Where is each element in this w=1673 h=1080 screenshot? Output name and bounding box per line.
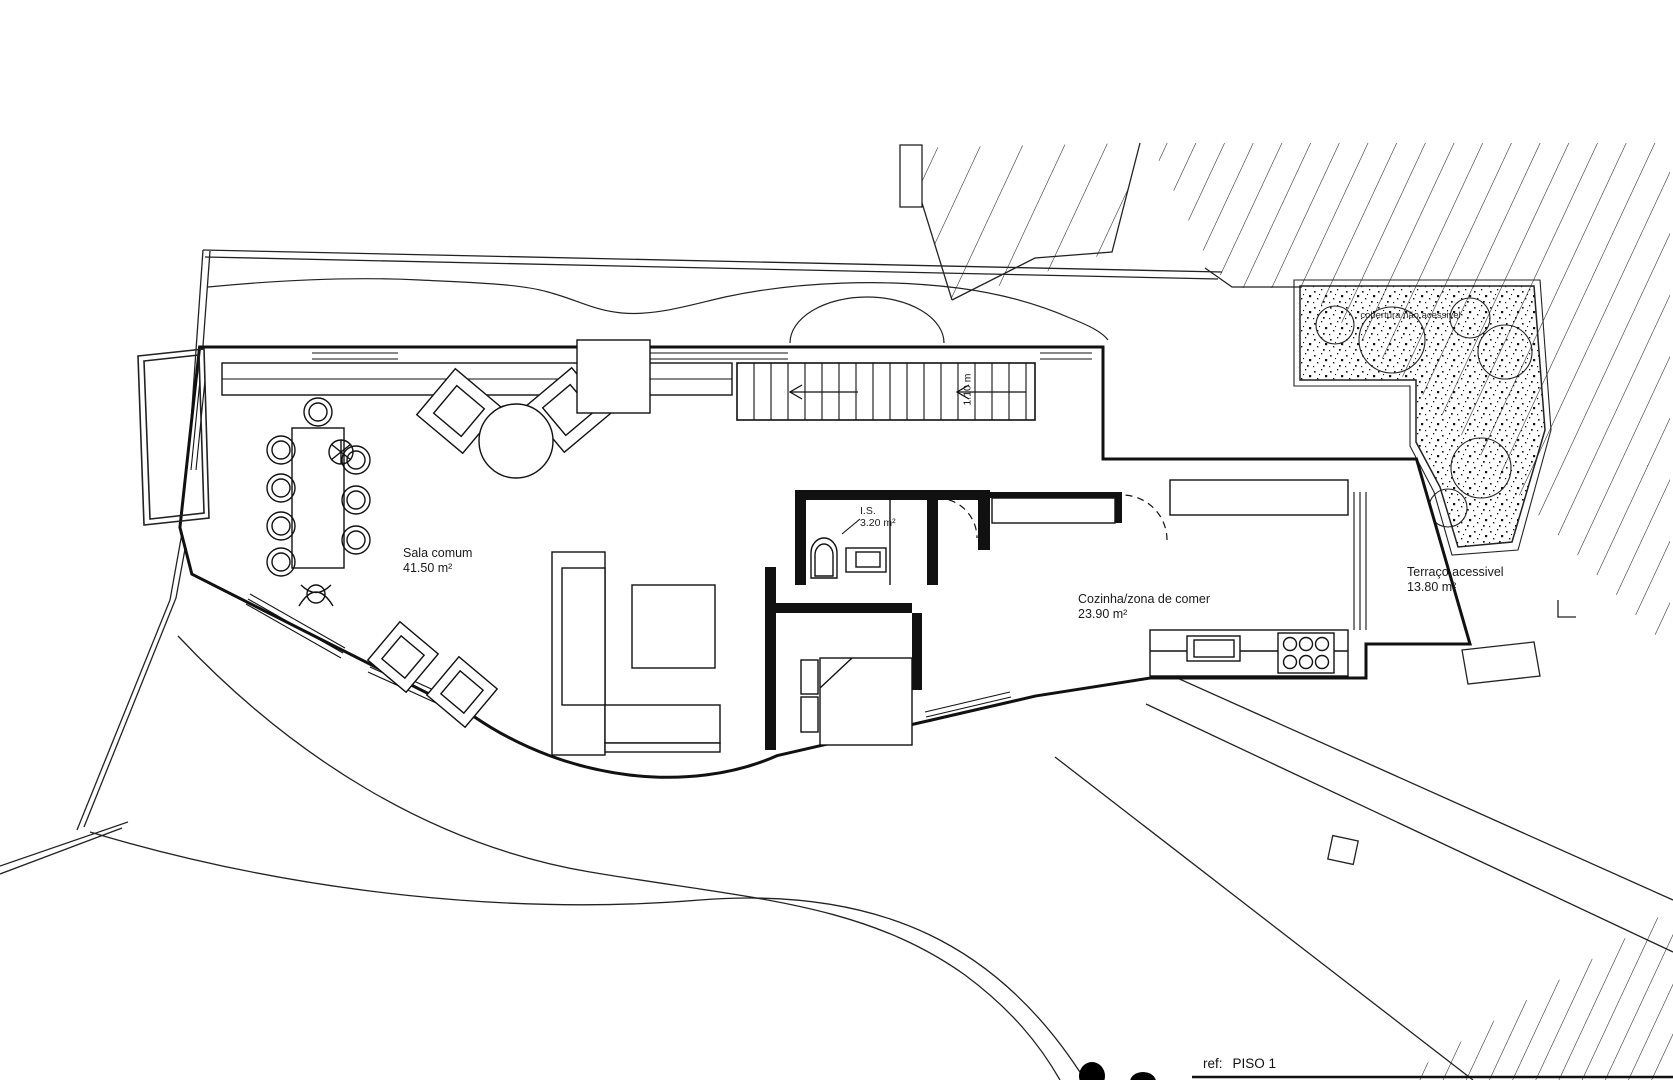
room-area: 13.80 m² [1407,580,1504,595]
titleblock-ref: ref:PISO 1 [1203,1056,1276,1071]
terrain-hatch-bottomright [1400,908,1673,1080]
room-name: Cozinha/zona de comer [1078,592,1210,607]
bedside-shelf [801,660,818,694]
bathroom-sink [846,548,886,572]
room-area: 3.20 m² [860,517,896,529]
room-label-terrace: Terraço acessivel 13.80 m² [1407,565,1504,595]
logo-mark [1079,1062,1105,1080]
ref-label: ref: [1203,1056,1223,1071]
room-area: 41.50 m² [403,561,472,576]
room-label-kitchen: Cozinha/zona de comer 23.90 m² [1078,592,1210,622]
room-name: I.S. [860,505,896,517]
room-name: Sala comum [403,546,472,561]
floorplan-page: PREDIVILLA Mediação Imobiliária [0,0,1673,1080]
bedside-shelf [801,697,818,732]
room-name: Terraço acessivel [1407,565,1504,580]
bedroom-furniture [801,658,912,745]
floorplan-drawing [0,0,1673,1080]
side-table [577,340,650,413]
room-label-bath: I.S. 3.20 m² [860,505,896,529]
bed [820,658,912,745]
sofa-seat [605,705,720,743]
room-area: 23.90 m² [1078,607,1210,622]
stair-width-dimension: 1.10 m [961,358,976,422]
toilet [811,538,837,578]
coffee-table [632,585,715,668]
logo-mark [1130,1072,1156,1080]
room-label-living: Sala comum 41.50 m² [403,546,472,576]
stove [1278,633,1334,673]
stairs [737,363,1035,420]
room-label-roof: cobertura não acessivel [1318,310,1503,321]
round-table [479,404,553,478]
kitchen-counter [1150,630,1348,676]
ref-value: PISO 1 [1233,1056,1277,1071]
